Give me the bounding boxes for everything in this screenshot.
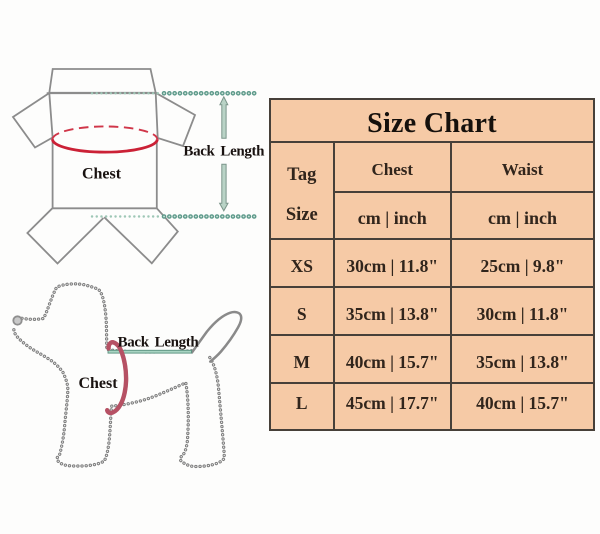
svg-text:Chest: Chest (78, 375, 118, 392)
svg-text:Back Length: Back Length (118, 335, 200, 351)
svg-text:Back Length: Back Length (183, 144, 265, 160)
svg-text:Chest: Chest (82, 166, 122, 183)
